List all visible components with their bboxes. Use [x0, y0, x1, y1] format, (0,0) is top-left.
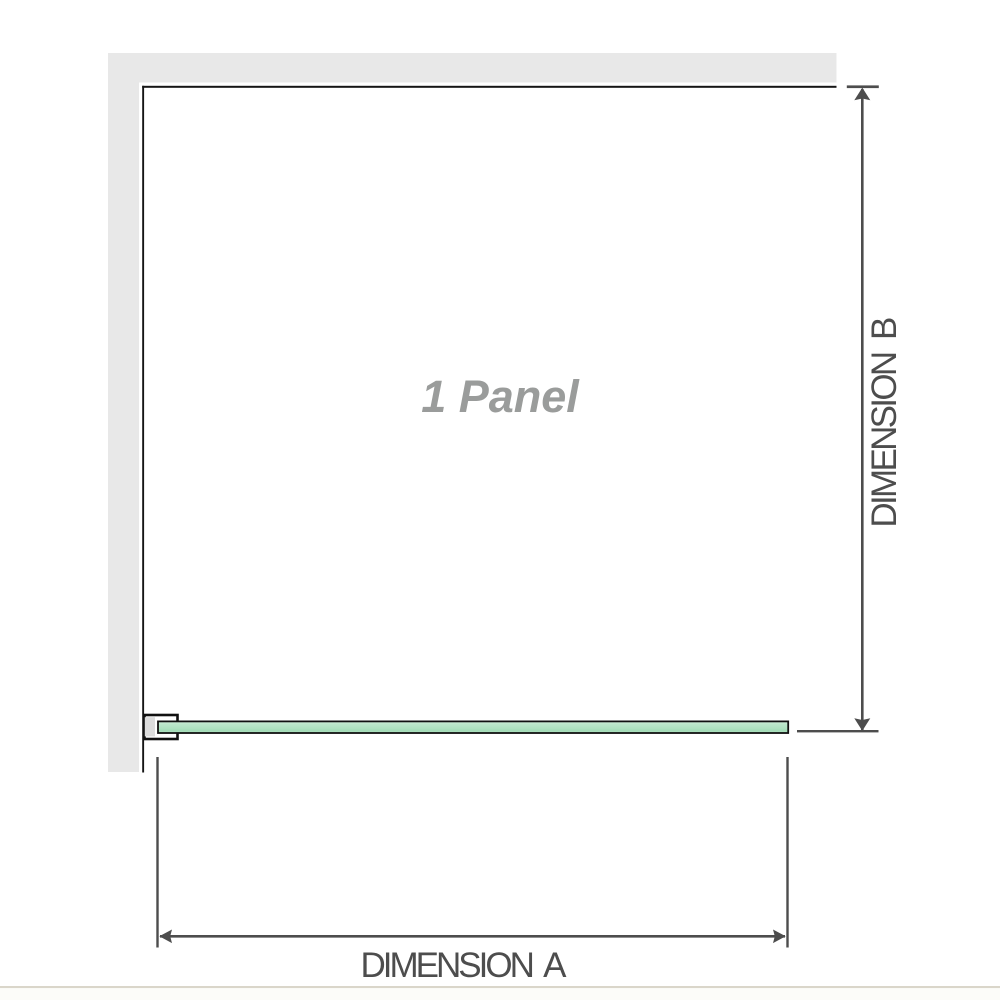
svg-text:1 Panel: 1 Panel [421, 371, 580, 422]
svg-text:DIMENSION B: DIMENSION B [865, 318, 904, 528]
svg-text:DIMENSION A: DIMENSION A [361, 946, 568, 985]
